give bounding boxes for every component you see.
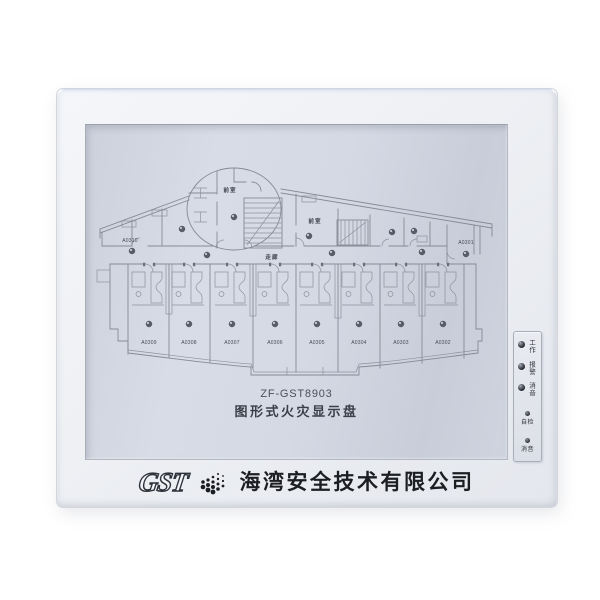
product-photo: 前室 前室 走廊 A0310 A0301 A0309 A0308 A0307 A… bbox=[0, 0, 600, 600]
power-led bbox=[518, 341, 525, 348]
room-label-a0308: A0308 bbox=[181, 340, 196, 346]
staircase-secondary bbox=[337, 220, 368, 245]
self-test-button-dot[interactable] bbox=[525, 411, 530, 416]
model-number: ZF-GST8903 bbox=[86, 388, 507, 400]
led-row-alarm: 报警 bbox=[518, 361, 534, 376]
mute-led bbox=[518, 384, 525, 391]
gst-dots-icon bbox=[199, 469, 229, 495]
led-row-mute: 消音 bbox=[518, 382, 534, 397]
room-label-a0305: A0305 bbox=[309, 340, 324, 346]
staircase-main bbox=[244, 198, 282, 248]
power-led-label: 工作 bbox=[527, 339, 534, 354]
room-label-a0306: A0306 bbox=[267, 340, 282, 346]
vestibule-label-1: 前室 bbox=[223, 186, 236, 194]
upper-walls bbox=[102, 194, 455, 264]
corridor-label: 走廊 bbox=[265, 253, 278, 261]
silence-button-label: 消音 bbox=[514, 444, 541, 453]
mute-led-label: 消音 bbox=[527, 382, 534, 397]
company-name: 海湾安全技术有限公司 bbox=[240, 472, 475, 493]
smoke-detectors bbox=[129, 214, 469, 327]
footer-brand-bar: GST 海湾安全技术有限公司 bbox=[57, 459, 557, 505]
guest-room-walls bbox=[128, 264, 464, 372]
building-outline bbox=[97, 264, 482, 375]
display-recess: 前室 前室 走廊 A0310 A0301 A0309 A0308 A0307 A… bbox=[85, 124, 508, 460]
room-label-a0309: A0309 bbox=[141, 340, 156, 346]
self-test-button[interactable]: 自检 bbox=[514, 411, 541, 426]
fire-display-panel: 前室 前室 走廊 A0310 A0301 A0309 A0308 A0307 A… bbox=[56, 88, 558, 508]
self-test-button-label: 自检 bbox=[514, 417, 541, 426]
room-label-a0303: A0303 bbox=[393, 340, 408, 346]
room-label-a0301: A0301 bbox=[458, 240, 473, 246]
led-row-power: 工作 bbox=[518, 339, 534, 354]
alarm-led bbox=[518, 363, 525, 370]
room-label-a0307: A0307 bbox=[224, 340, 239, 346]
plan-labels: 前室 前室 走廊 A0310 A0301 A0309 A0308 A0307 A… bbox=[122, 186, 473, 346]
silence-button[interactable]: 消音 bbox=[514, 438, 541, 453]
room-label-a0304: A0304 bbox=[351, 340, 366, 346]
room-label-a0310: A0310 bbox=[122, 238, 137, 244]
vestibule-label-2: 前室 bbox=[308, 217, 321, 225]
silkscreen-title: ZF-GST8903 图形式火灾显示盘 bbox=[86, 388, 507, 420]
gst-logo: GST bbox=[138, 469, 190, 496]
alarm-led-label: 报警 bbox=[527, 361, 534, 376]
silence-button-dot[interactable] bbox=[525, 438, 530, 443]
indicator-strip: 工作 报警 消音 自检 消音 bbox=[513, 331, 542, 462]
product-name: 图形式火灾显示盘 bbox=[86, 401, 507, 420]
room-label-a0302: A0302 bbox=[435, 340, 450, 346]
